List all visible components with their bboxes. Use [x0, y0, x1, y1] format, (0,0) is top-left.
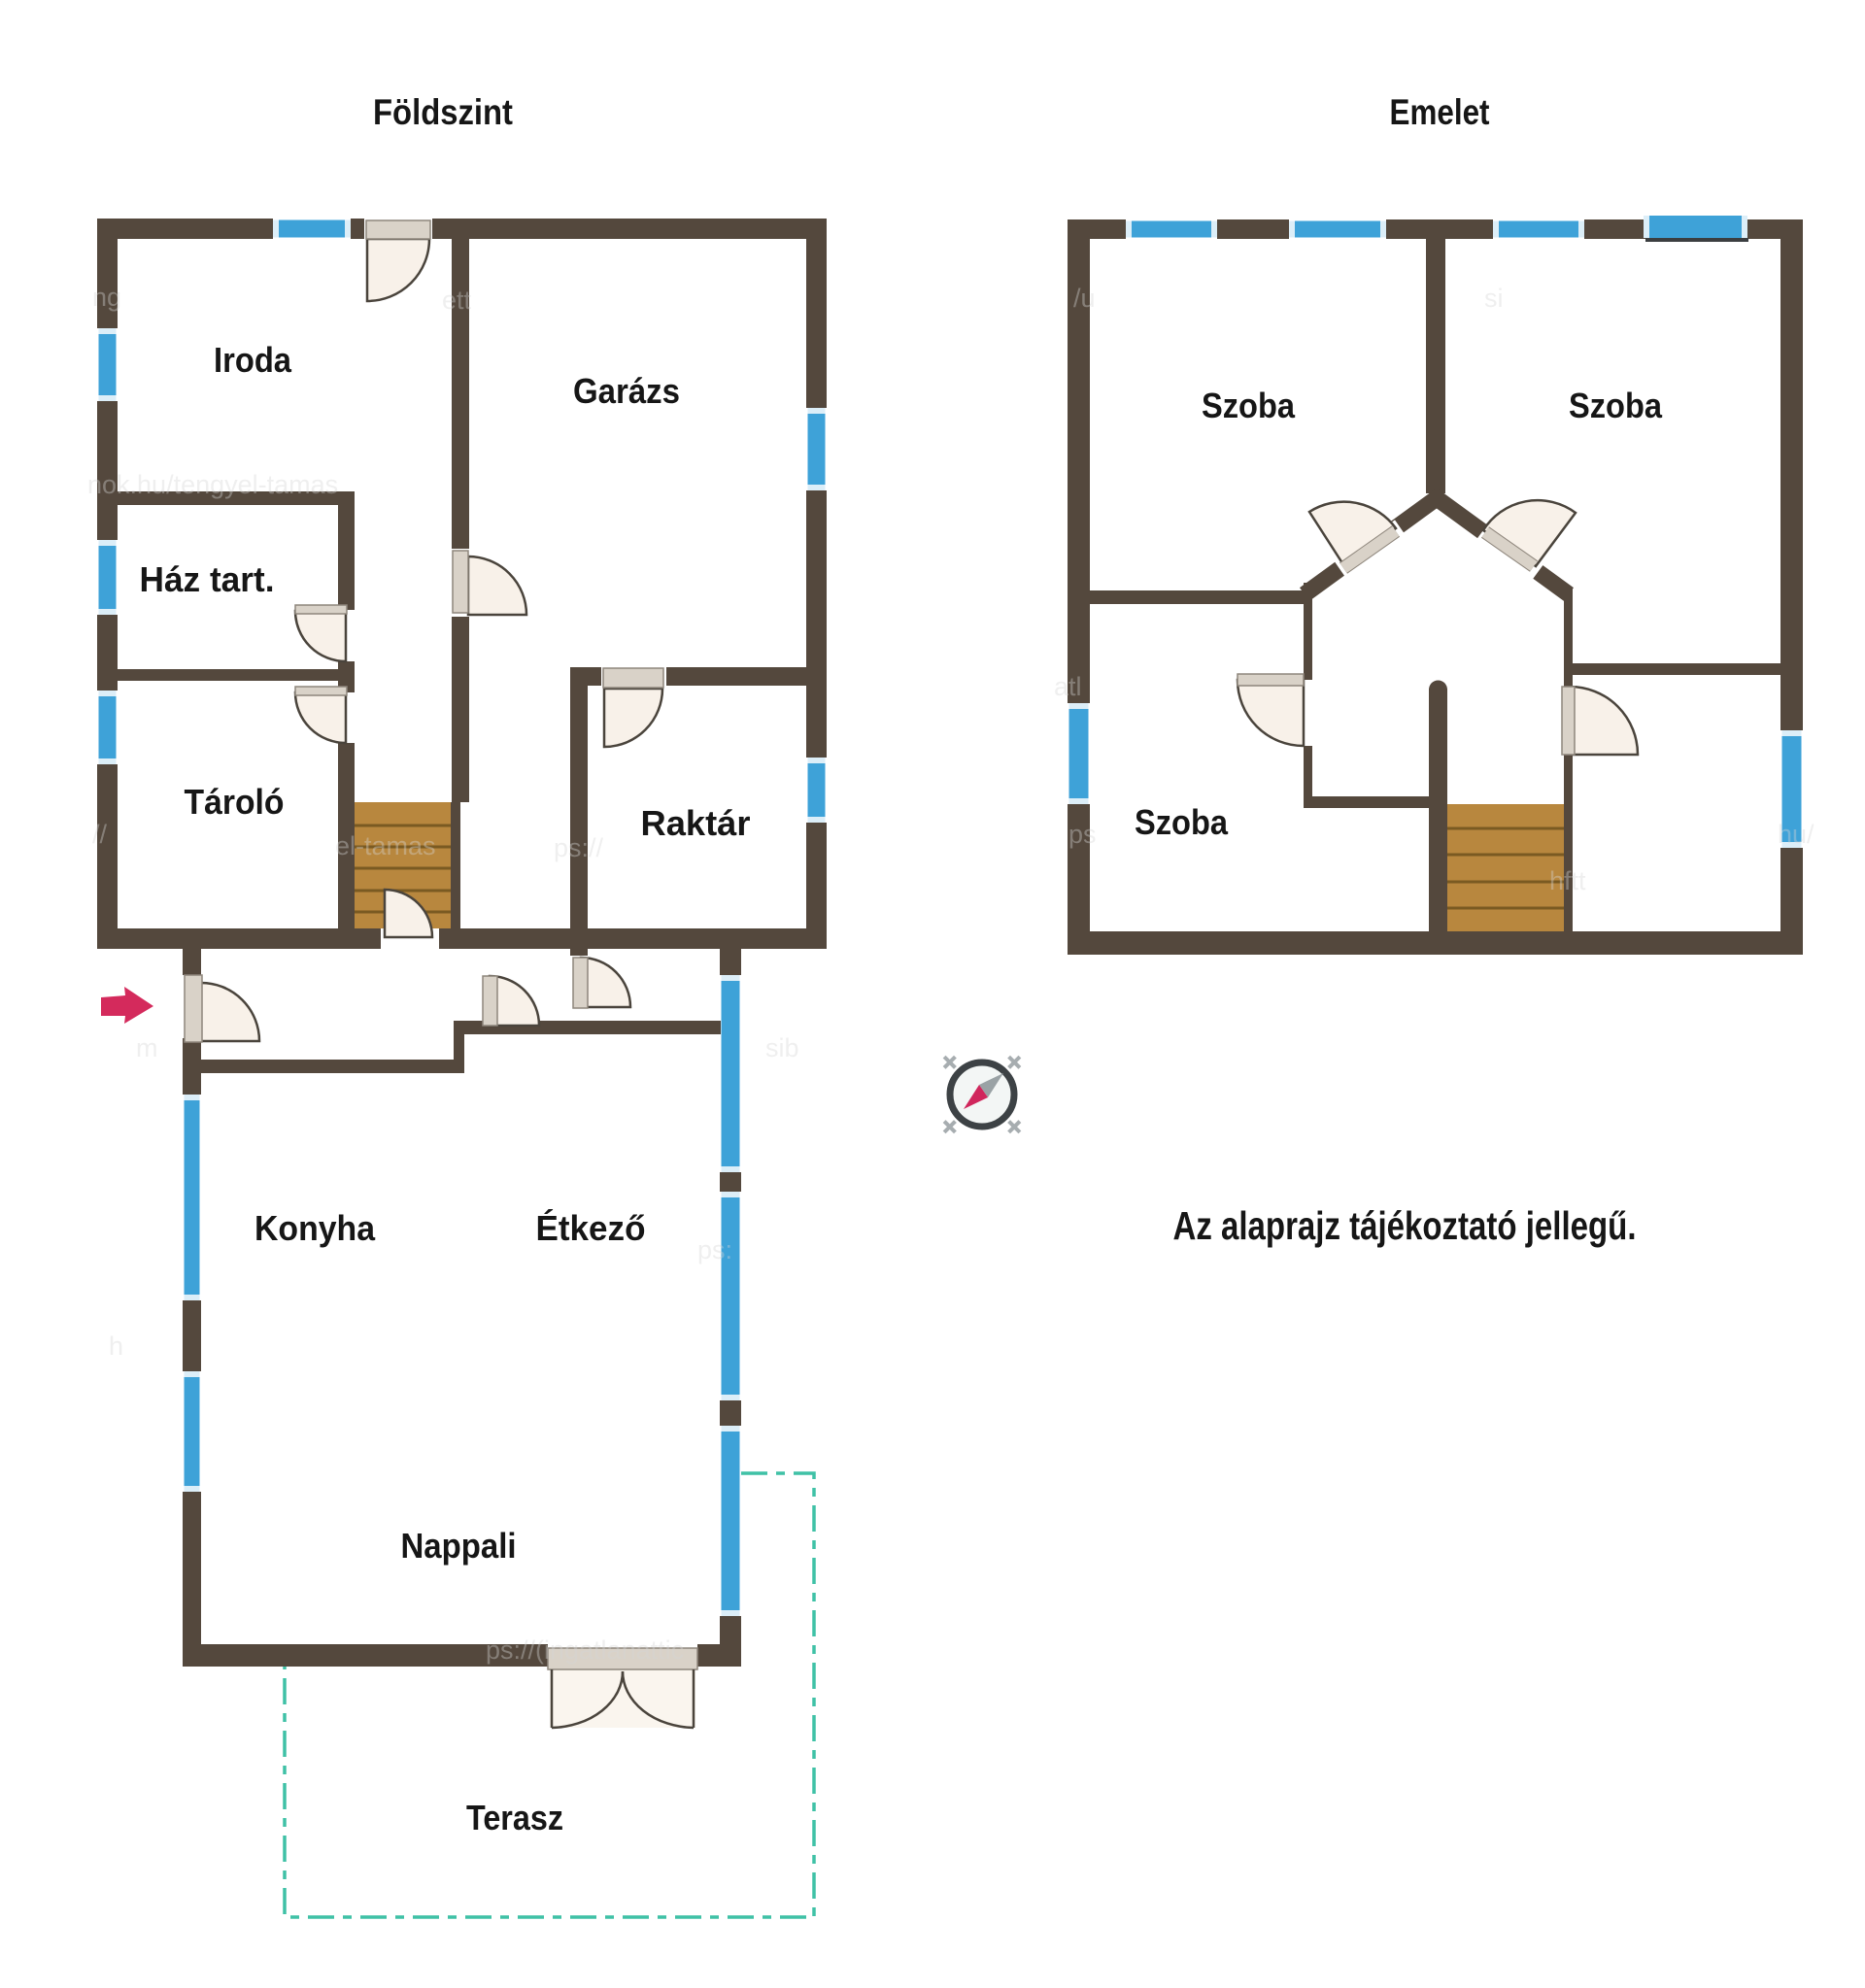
- svg-text:el-tamas: el-tamas: [335, 831, 436, 860]
- svg-text:Étkező: Étkező: [536, 1208, 646, 1248]
- svg-text:Terasz: Terasz: [466, 1798, 563, 1837]
- svg-text:ps://(ingatlanattic: ps://(ingatlanattic: [486, 1635, 684, 1665]
- svg-text:atl: atl: [1054, 672, 1082, 701]
- svg-text:Konyha: Konyha: [254, 1208, 376, 1248]
- svg-text:ett: ett: [442, 286, 472, 315]
- svg-text:Raktár: Raktár: [641, 803, 751, 843]
- svg-text:hftt: hftt: [1549, 866, 1586, 895]
- svg-text://: //: [92, 820, 108, 849]
- svg-text:si: si: [1484, 284, 1504, 313]
- svg-text:Az alaprajz tájékoztató jelleg: Az alaprajz tájékoztató jellegű.: [1173, 1203, 1637, 1248]
- svg-text:Nappali: Nappali: [401, 1526, 517, 1566]
- svg-text:ps: ps: [1068, 820, 1097, 849]
- svg-text:Szoba: Szoba: [1569, 386, 1663, 425]
- svg-text:ps://: ps://: [554, 833, 604, 862]
- svg-text:ng: ng: [92, 283, 121, 312]
- svg-text:Iroda: Iroda: [214, 340, 292, 380]
- svg-text:nok.hu/tengyel-tamas: nok.hu/tengyel-tamas: [87, 470, 338, 499]
- svg-text:m: m: [136, 1033, 158, 1062]
- svg-text:Szoba: Szoba: [1202, 386, 1296, 425]
- svg-text:Garázs: Garázs: [573, 371, 680, 411]
- svg-text:Szoba: Szoba: [1135, 802, 1229, 842]
- svg-text:Ház tart.: Ház tart.: [140, 559, 275, 599]
- svg-text:Földszint: Földszint: [373, 92, 513, 132]
- svg-text:sib: sib: [765, 1033, 799, 1062]
- svg-text:hu/: hu/: [1778, 820, 1814, 849]
- svg-text:ps:: ps:: [697, 1235, 732, 1264]
- svg-text:h: h: [109, 1331, 123, 1361]
- svg-text:Emelet: Emelet: [1390, 92, 1490, 132]
- svg-text:Tároló: Tároló: [185, 782, 285, 822]
- svg-text:/u: /u: [1073, 284, 1096, 313]
